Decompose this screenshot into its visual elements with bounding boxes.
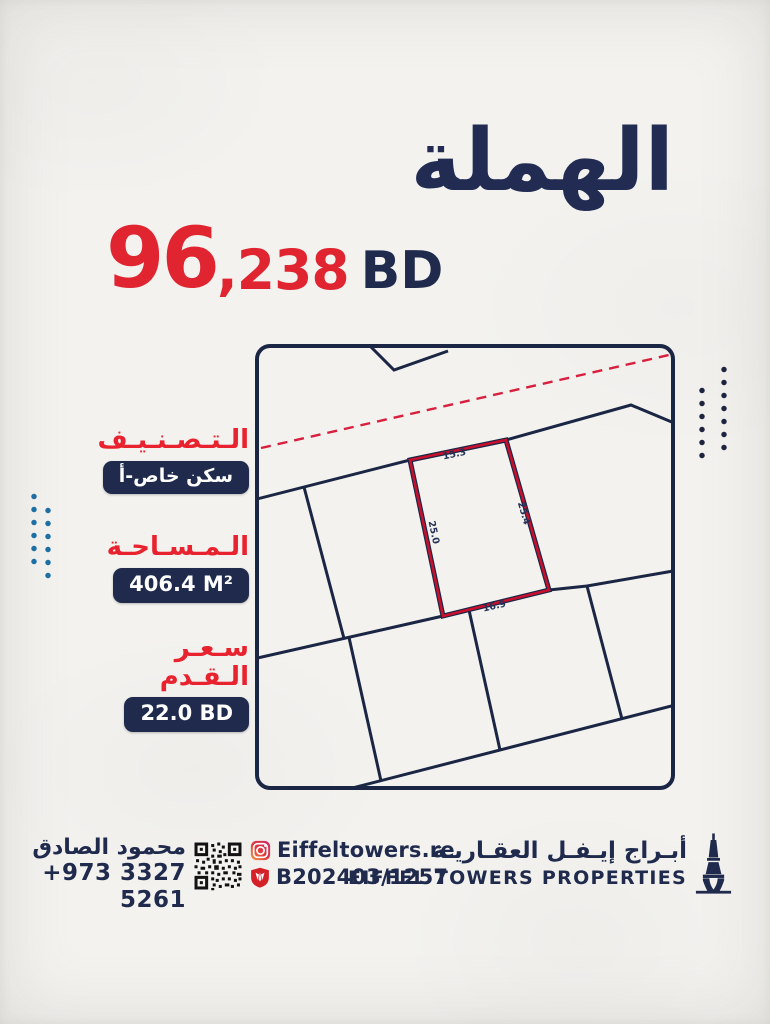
plot-map: 15.3 25.4 25.0 16.9 <box>255 344 675 790</box>
brand-names: أبـراج إيـفـل العقـاريـة EIFFEL TOWERS P… <box>348 838 687 889</box>
price-per-foot-value-badge: 22.0 BD <box>124 697 249 732</box>
price-per-foot-label: سـعـر الـقـدم <box>83 634 249 691</box>
shield-icon <box>250 867 270 888</box>
plot-map-svg: 15.3 25.4 25.0 16.9 <box>255 344 675 790</box>
road-dashed-line <box>261 355 669 448</box>
flyer-page: الهملة 96 ,238 BD الـتـصـنـيـف سكن خاص-أ… <box>0 0 770 1024</box>
price-fraction: ,238 <box>217 248 349 293</box>
price-main: 96 <box>106 224 217 293</box>
area-value-badge: 406.4 M² <box>113 568 249 603</box>
spec-area: الـمـسـاحـة 406.4 M² <box>83 533 249 603</box>
company-name-english: EIFFEL TOWERS PROPERTIES <box>348 867 687 890</box>
classification-label: الـتـصـنـيـف <box>97 426 249 455</box>
instagram-icon <box>250 840 271 861</box>
price-block: 96 ,238 BD <box>106 224 443 293</box>
parcel-lines <box>255 346 675 790</box>
spec-classification: الـتـصـنـيـف سكن خاص-أ <box>83 426 249 494</box>
brand-block: أبـراج إيـفـل العقـاريـة EIFFEL TOWERS P… <box>348 831 732 897</box>
dot-grid-right-col2 <box>719 364 729 456</box>
qr-code <box>192 841 244 891</box>
eiffel-tower-icon <box>695 831 732 897</box>
company-name-arabic: أبـراج إيـفـل العقـاريـة <box>432 838 687 866</box>
dim-bottom-label: 16.9 <box>482 599 507 615</box>
agent-name: محمود الصادق <box>28 836 186 860</box>
agent-phone: +973 3327 5261 <box>28 860 186 913</box>
dim-top-label: 15.3 <box>442 447 467 463</box>
dim-right-label: 25.4 <box>515 501 532 527</box>
page-title: الهملة <box>411 118 674 204</box>
dot-grid-right-col1 <box>697 385 707 464</box>
classification-value-badge: سكن خاص-أ <box>103 461 249 494</box>
agent-contact: محمود الصادق +973 3327 5261 <box>28 836 186 913</box>
qr-code-svg <box>192 841 244 891</box>
price-currency: BD <box>361 250 444 293</box>
dot-grid-left-col1 <box>29 491 39 570</box>
dot-grid-left-col2 <box>43 505 53 584</box>
area-label: الـمـسـاحـة <box>107 533 249 562</box>
spec-price-per-foot: سـعـر الـقـدم 22.0 BD <box>83 634 249 732</box>
